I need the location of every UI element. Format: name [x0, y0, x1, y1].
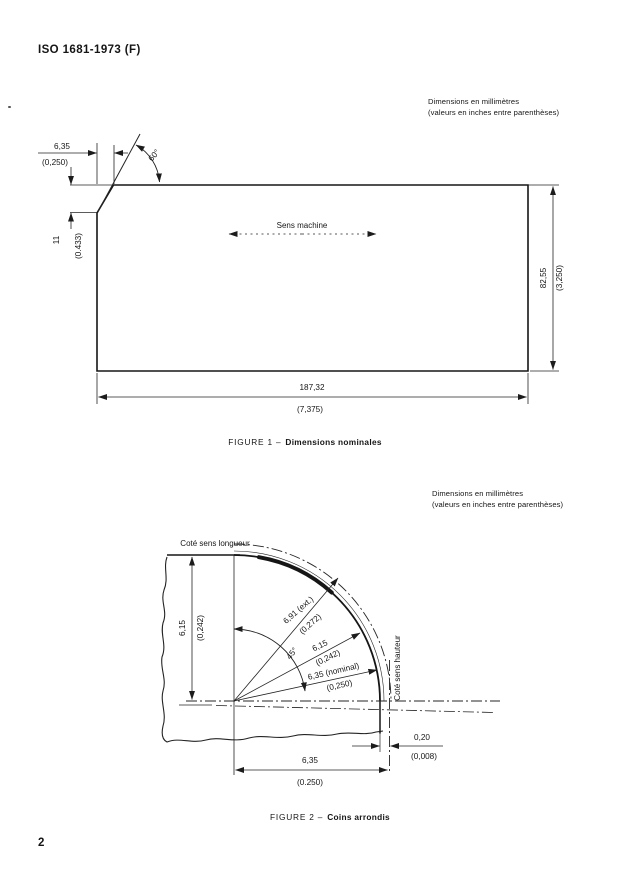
- base-value: 6,35: [302, 756, 318, 765]
- width-inches: (7,375): [297, 405, 323, 414]
- page-number: 2: [38, 837, 44, 849]
- figure1-drawing: [38, 134, 559, 404]
- bevel-height-inches: (0.433): [74, 233, 83, 259]
- gap-inches: (0,008): [411, 752, 437, 761]
- height-inches: (3,250): [555, 265, 564, 291]
- figure2-radius-nominal-line: [234, 670, 377, 701]
- figure2-caption-title: Coins arrondis: [327, 812, 390, 822]
- bevel-width-inches: (0,250): [42, 158, 68, 167]
- figure2-corner-arc-emphasis: [259, 557, 332, 592]
- bevel-width-value: 6,35: [54, 142, 70, 151]
- angle-value: 60°: [147, 148, 162, 163]
- figure1-labels: 6,35 (0,250) 60° 11 (0.433) Sens machine…: [42, 142, 564, 414]
- height-value: 82,55: [539, 267, 548, 288]
- machine-direction-label: Sens machine: [277, 221, 328, 230]
- right-edge-label: Coté sens hauteur: [393, 635, 402, 701]
- base-inches: (0.250): [297, 778, 323, 787]
- figure2-secondary-centerline: [216, 706, 494, 713]
- radius-nominal-value: 6,35 (nominal): [307, 661, 360, 682]
- figure1-bevel-construction-line: [98, 134, 141, 213]
- top-edge-label: Coté sens longueur: [180, 539, 250, 548]
- figure2-caption: FIGURE 2 –Coins arrondis: [180, 812, 480, 822]
- figure2-torn-edge: [162, 557, 383, 742]
- figure1-caption: FIGURE 1 –Dimensions nominales: [155, 437, 455, 447]
- width-value: 187,32: [299, 383, 324, 392]
- bevel-height-value: 11: [52, 235, 61, 244]
- figure1-caption-title: Dimensions nominales: [285, 437, 381, 447]
- figure2-caption-label: FIGURE 2 –: [270, 812, 323, 822]
- gap-value: 0,20: [414, 733, 430, 742]
- angle-value: 45°: [285, 646, 300, 661]
- figure1-caption-label: FIGURE 1 –: [228, 437, 281, 447]
- figure1-sheet-outline: [97, 185, 528, 371]
- left-offset-inches: (0,242): [196, 615, 205, 641]
- left-offset-value: 6,15: [178, 620, 187, 636]
- radius-ext-inches: (0,272): [298, 612, 324, 636]
